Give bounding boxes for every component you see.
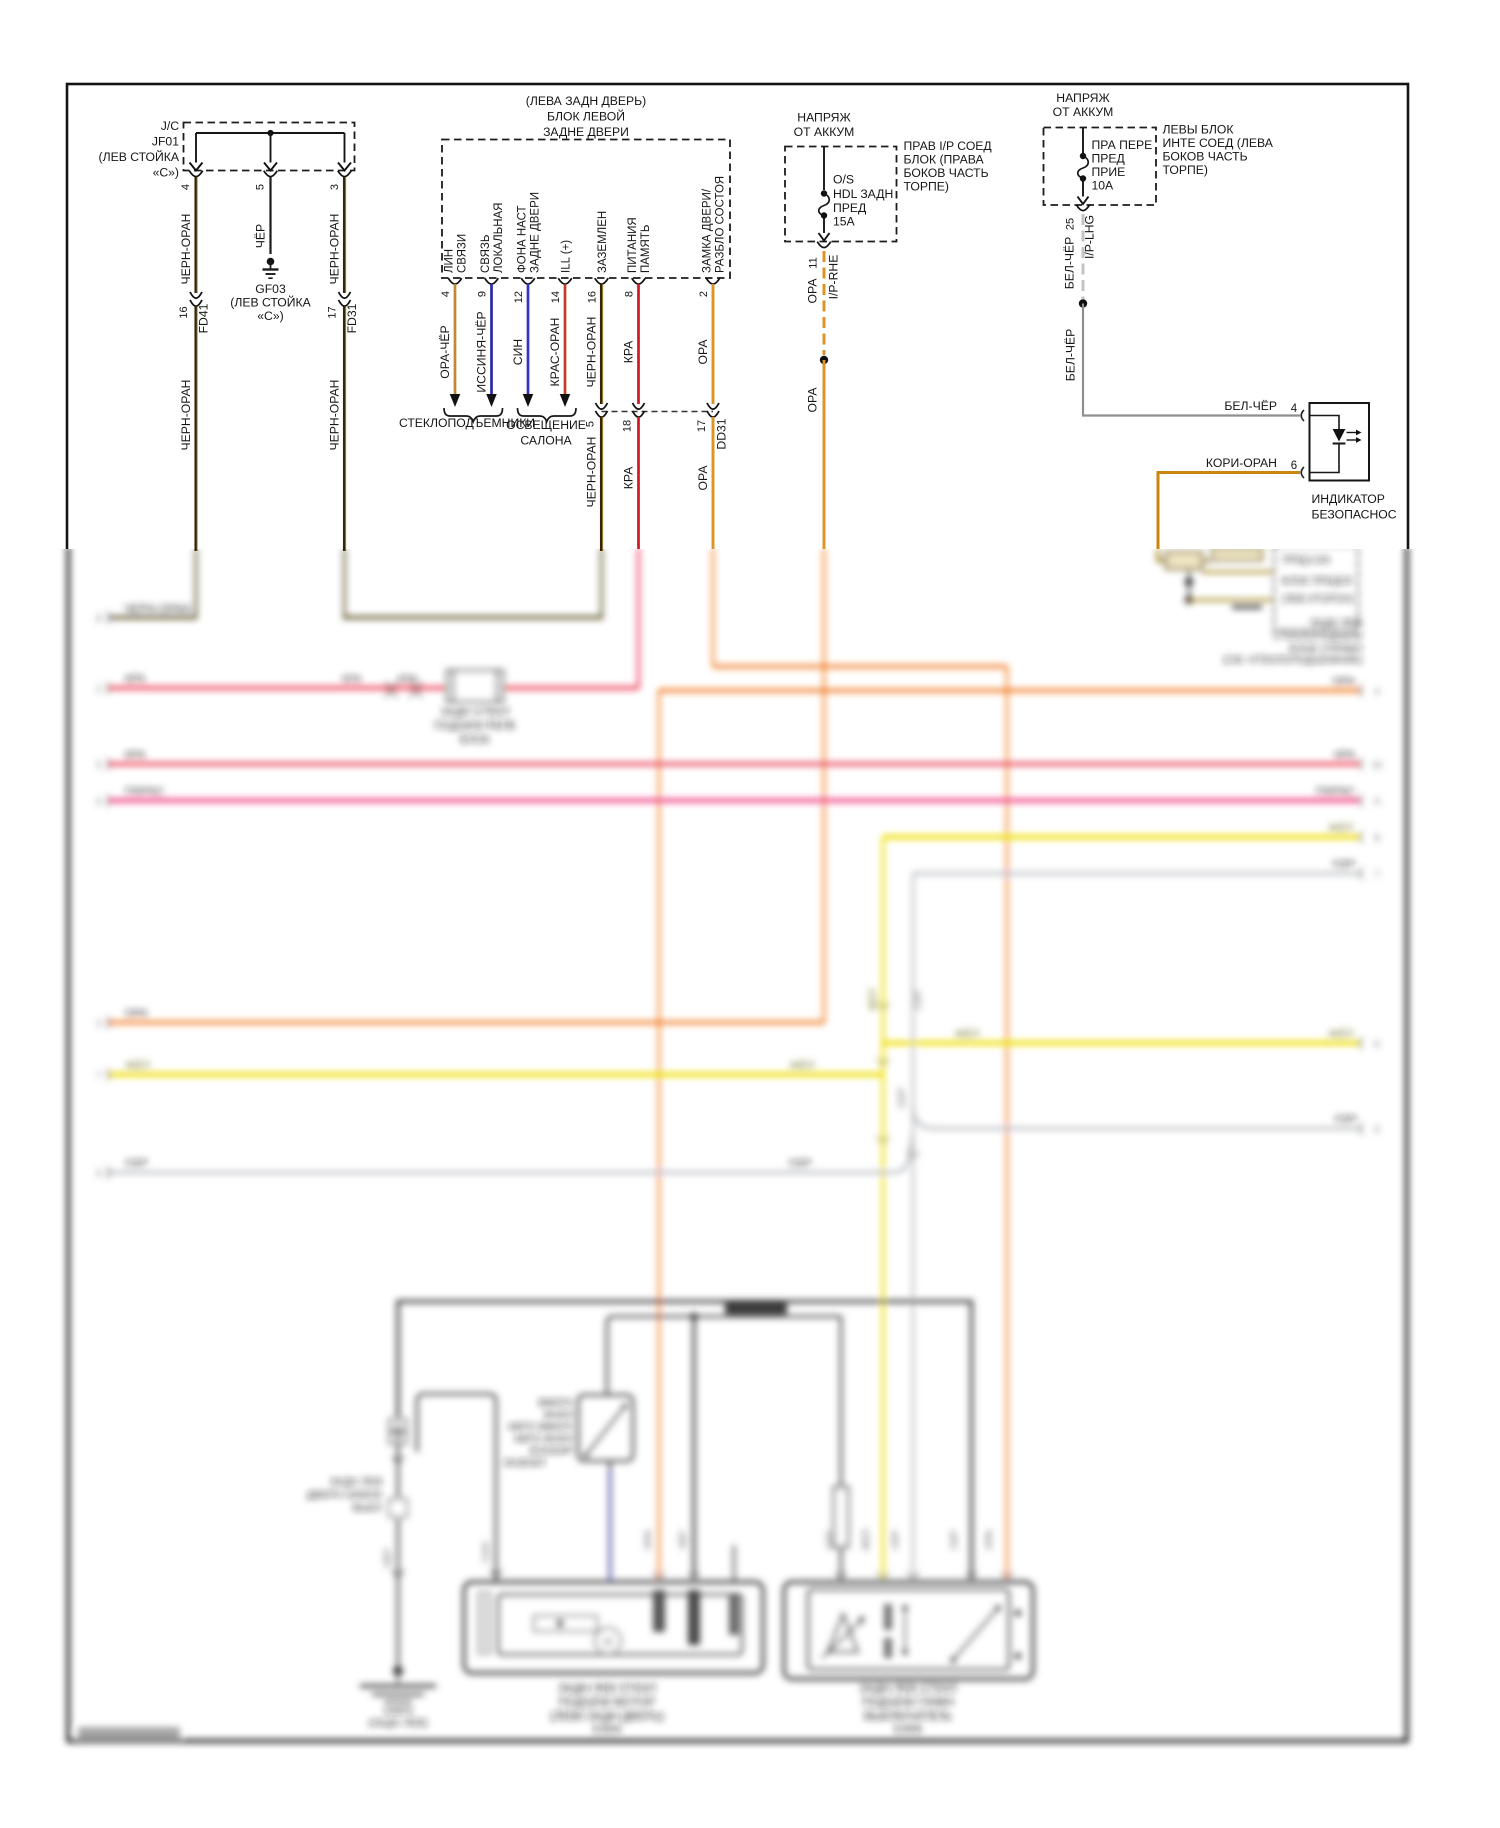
svg-text:ЖЁЛ: ЖЁЛ — [1328, 823, 1353, 835]
svg-text:(ЛЕВ СТОЙКА: (ЛЕВ СТОЙКА — [230, 295, 311, 310]
svg-text:4: 4 — [1374, 687, 1379, 698]
svg-text:НАПРЯЖ: НАПРЯЖ — [797, 111, 851, 125]
svg-text:КОРИ-ОРАН: КОРИ-ОРАН — [1206, 456, 1277, 470]
svg-text:10: 10 — [1372, 760, 1383, 771]
svg-text:БЛОКИР: БЛОКИР — [530, 1445, 573, 1457]
svg-text:ВНИЗ: ВНИЗ — [545, 1409, 573, 1421]
svg-text:14: 14 — [550, 291, 562, 303]
svg-text:12: 12 — [513, 291, 525, 303]
svg-text:I/P-RHE: I/P-RHE — [827, 255, 841, 300]
svg-text:ОТ АККУМ: ОТ АККУМ — [1053, 105, 1114, 119]
svg-text:САЛОНА: САЛОНА — [520, 434, 572, 448]
svg-text:ЧЕРН-ОРАН: ЧЕРН-ОРАН — [179, 380, 193, 451]
svg-text:СВЯЗЬ: СВЯЗЬ — [480, 235, 492, 273]
svg-text:FD41: FD41 — [197, 303, 211, 333]
svg-text:ЧЕРН-ОРАН: ЧЕРН-ОРАН — [124, 604, 191, 616]
svg-text:БОКОВ ЧАСТЬ: БОКОВ ЧАСТЬ — [1163, 150, 1248, 164]
svg-text:АВТО ВНИЗ: АВТО ВНИЗ — [514, 1433, 573, 1445]
svg-text:ЗАДН ЛЕВ СТЕКЛ: ЗАДН ЛЕВ СТЕКЛ — [859, 1683, 956, 1695]
svg-text:11: 11 — [808, 257, 820, 268]
svg-text:ОРА: ОРА — [696, 339, 710, 365]
svg-text:БЛОК (ПРАВА: БЛОК (ПРАВА — [904, 153, 985, 167]
svg-text:КРА: КРА — [622, 340, 636, 363]
svg-text:ЛИН: ЛИН — [444, 249, 456, 273]
svg-text:7: 7 — [1374, 870, 1379, 881]
svg-text:СЕР: СЕР — [897, 1087, 908, 1108]
svg-text:9: 9 — [477, 291, 489, 297]
svg-text:ПРЕД: ПРЕД — [833, 201, 867, 215]
svg-text:GM03: GM03 — [384, 1705, 413, 1717]
svg-text:ЖЁЛ: ЖЁЛ — [125, 1060, 150, 1072]
svg-text:БЛОК ЛЕВОЙ: БЛОК ЛЕВОЙ — [547, 109, 625, 124]
svg-text:ЛЕВЫ БЛОК: ЛЕВЫ БЛОК — [1163, 123, 1235, 137]
svg-text:ДВЕРН ЗАМОК: ДВЕРН ЗАМОК — [307, 1489, 383, 1501]
svg-text:(ЛЕВА ЗАДН ДВЕРЬ): (ЛЕВА ЗАДН ДВЕРЬ) — [526, 94, 646, 108]
svg-text:ЗАЗЕМЛЕН: ЗАЗЕМЛЕН — [597, 211, 609, 273]
svg-text:ЖЁЛ: ЖЁЛ — [867, 989, 879, 1011]
svg-text:ЗАДН СТЕКЛ: ЗАДН СТЕКЛ — [441, 706, 509, 718]
svg-text:СЕР: СЕР — [890, 1530, 901, 1550]
svg-text:СИН: СИН — [481, 1541, 492, 1563]
svg-text:9: 9 — [96, 1169, 101, 1180]
svg-text:9: 9 — [1374, 797, 1379, 808]
svg-text:16: 16 — [178, 306, 190, 318]
svg-text:(СМ. СТЕКЛОПОДЪЕМНИК): (СМ. СТЕКЛОПОДЪЕМНИК) — [1223, 654, 1362, 666]
svg-text:3: 3 — [96, 1019, 101, 1030]
svg-text:ЗАМКА ДВЕРИ/: ЗАМКА ДВЕРИ/ — [702, 188, 714, 273]
svg-text:M: M — [603, 1637, 613, 1649]
svg-text:(ЛЕВ СТОРОН): (ЛЕВ СТОРОН) — [1282, 594, 1353, 605]
svg-text:ОРА: ОРА — [806, 278, 820, 304]
svg-text:КРА: КРА — [622, 466, 636, 489]
svg-text:GF03: GF03 — [255, 282, 286, 296]
svg-text:ПРАВ I/P СОЕД: ПРАВ I/P СОЕД — [904, 139, 993, 153]
svg-text:(ЛЕВА ЗАДН ДВЕРЬ): (ЛЕВА ЗАДН ДВЕРЬ) — [550, 1711, 664, 1723]
svg-text:ОСВЕЩЕНИЕ: ОСВЕЩЕНИЕ — [506, 418, 586, 432]
svg-text:П/КРАС: П/КРАС — [125, 786, 164, 798]
svg-text:5: 5 — [1374, 1125, 1379, 1136]
svg-text:СЕР: СЕР — [1332, 859, 1355, 871]
svg-text:5: 5 — [255, 184, 267, 190]
svg-text:ПОДЪЕМ РЕЛЕ: ПОДЪЕМ РЕЛЕ — [434, 720, 515, 732]
svg-text:СЕР: СЕР — [825, 1530, 836, 1550]
svg-text:4: 4 — [440, 291, 452, 297]
svg-text:15A: 15A — [833, 215, 856, 229]
svg-text:ЧЕРН-ОРАН: ЧЕРН-ОРАН — [328, 214, 342, 285]
svg-text:16: 16 — [587, 291, 599, 303]
svg-text:ОРА: ОРА — [1333, 676, 1356, 688]
svg-text:ЗАДН ЛЕВ СТЕКЛ: ЗАДН ЛЕВ СТЕКЛ — [558, 1683, 655, 1695]
svg-text:ЧЕРН-ОРАН: ЧЕРН-ОРАН — [585, 317, 599, 388]
svg-text:ЗАДН ЛЕВ: ЗАДН ЛЕВ — [1310, 617, 1362, 629]
svg-text:6: 6 — [1374, 1039, 1379, 1050]
svg-text:ИНДИКАТОР: ИНДИКАТОР — [1312, 492, 1385, 506]
svg-text:ПРЕД 10А: ПРЕД 10А — [1282, 555, 1330, 566]
svg-text:ЗАДНЕ ДВЕРИ: ЗАДНЕ ДВЕРИ — [543, 125, 629, 139]
svg-text:П/КРАС: П/КРАС — [1316, 786, 1355, 798]
svg-text:25: 25 — [1065, 218, 1077, 230]
svg-text:БОКОВ ЧАСТЬ: БОКОВ ЧАСТЬ — [904, 166, 989, 180]
svg-text:СЕР: СЕР — [913, 989, 924, 1010]
svg-text:БЕЛ-ЧЁР: БЕЛ-ЧЁР — [1063, 237, 1077, 290]
svg-text:БЕЗОПАСНОС: БЕЗОПАСНОС — [1312, 508, 1397, 522]
svg-text:ОРА-ЧЁР: ОРА-ЧЁР — [438, 325, 452, 378]
svg-text:ЖЁЛ: ЖЁЛ — [790, 1060, 815, 1072]
svg-text:«С»): «С») — [257, 309, 283, 323]
svg-text:ILL (+): ILL (+) — [561, 240, 573, 273]
svg-text:СЕР: СЕР — [1334, 1114, 1357, 1126]
svg-text:ПАМЯТЬ: ПАМЯТЬ — [640, 225, 652, 273]
svg-text:КРА: КРА — [398, 674, 417, 686]
svg-text:ТОРПЕ): ТОРПЕ) — [904, 180, 949, 194]
svg-text:БЛОК: БЛОК — [460, 734, 490, 746]
svg-text:ФОНА НАСТ: ФОНА НАСТ — [517, 205, 529, 273]
svg-text:ИНТЕ СОЕД (ЛЕВА: ИНТЕ СОЕД (ЛЕВА — [1163, 136, 1274, 150]
svg-text:ОТ АККУМ: ОТ АККУМ — [794, 125, 855, 139]
svg-text:КРА: КРА — [125, 674, 146, 686]
svg-text:2: 2 — [698, 291, 710, 297]
svg-text:ЧЕРН-ОРАН: ЧЕРН-ОРАН — [179, 214, 193, 285]
svg-text:7: 7 — [96, 1071, 101, 1082]
svg-text:КРА: КРА — [342, 674, 361, 686]
svg-text:8: 8 — [96, 614, 101, 625]
svg-text:18: 18 — [622, 420, 634, 432]
svg-text:ВЫКЛ: ВЫКЛ — [353, 1502, 382, 1514]
svg-text:КРАС-ОРАН: КРАС-ОРАН — [548, 318, 562, 387]
svg-text:ЖЁЛ: ЖЁЛ — [861, 1529, 872, 1550]
svg-text:ЧЕРН-ОРАН: ЧЕРН-ОРАН — [585, 437, 599, 508]
svg-text:ОРА: ОРА — [696, 465, 710, 491]
svg-text:СВЯЗИ: СВЯЗИ — [457, 234, 469, 273]
svg-text:HDL ЗАДН: HDL ЗАДН — [833, 187, 893, 201]
svg-text:БЕЛ-ЧЁР: БЕЛ-ЧЁР — [1064, 329, 1078, 382]
svg-text:ПИТАНИЯ: ПИТАНИЯ — [627, 217, 639, 273]
svg-text:ПРЕД: ПРЕД — [1092, 152, 1126, 166]
svg-text:J/C: J/C — [161, 119, 179, 133]
svg-text:ЖЁЛ: ЖЁЛ — [955, 1029, 980, 1041]
svg-text:6: 6 — [1291, 460, 1297, 472]
svg-text:2: 2 — [96, 684, 101, 695]
svg-text:«С»): «С») — [153, 166, 179, 180]
svg-text:10A: 10A — [1092, 179, 1115, 193]
svg-text:17: 17 — [696, 420, 708, 432]
svg-text:(ЛЕВ СТОЙКА: (ЛЕВ СТОЙКА — [99, 149, 180, 164]
svg-text:ОРА: ОРА — [806, 387, 820, 413]
svg-text:ПОДЪЕМ ГЛАВН: ПОДЪЕМ ГЛАВН — [862, 1697, 953, 1709]
svg-text:4: 4 — [180, 184, 192, 190]
svg-text:ОРА: ОРА — [125, 1008, 148, 1020]
svg-text:ЗАДН ЛЕВ: ЗАДН ЛЕВ — [330, 1476, 382, 1488]
svg-text:FD31: FD31 — [345, 303, 359, 333]
svg-text:JF01: JF01 — [152, 135, 179, 149]
svg-text:5: 5 — [96, 760, 101, 771]
svg-text:O/S: O/S — [833, 173, 854, 187]
svg-text:D305: D305 — [894, 1724, 922, 1736]
svg-text:ЗАЗЕМЛ: ЗАЗЕМЛ — [503, 1457, 545, 1469]
svg-text:СЕР: СЕР — [949, 1530, 960, 1550]
svg-text:ЖЁЛ: ЖЁЛ — [1328, 1029, 1353, 1041]
svg-text:ПОДЪЕМ МОТОР: ПОДЪЕМ МОТОР — [559, 1697, 655, 1709]
svg-text:ЧЁР: ЧЁР — [382, 1548, 394, 1568]
svg-text:ЧЁР: ЧЁР — [254, 224, 268, 248]
svg-text:I/P-LHG: I/P-LHG — [1083, 215, 1097, 259]
svg-text:БЕЛ-ЧЁР: БЕЛ-ЧЁР — [1224, 399, 1277, 413]
svg-text:5: 5 — [585, 421, 597, 427]
svg-text:8: 8 — [624, 291, 636, 297]
svg-text:ПРИЕ: ПРИЕ — [1092, 165, 1126, 179]
svg-text:ЗАДНЕ ДВЕРИ: ЗАДНЕ ДВЕРИ — [530, 192, 542, 273]
svg-text:(ЗАДН ЛЕВ): (ЗАДН ЛЕВ) — [368, 1717, 427, 1729]
svg-text:17: 17 — [327, 306, 339, 318]
svg-text:ЛОКАЛЬНАЯ: ЛОКАЛЬНАЯ — [493, 203, 505, 274]
svg-text:8: 8 — [1374, 833, 1379, 844]
svg-text:ВЫКЛЮЧАТЕЛЬ: ВЫКЛЮЧАТЕЛЬ — [864, 1711, 952, 1723]
svg-text:НАПРЯЖ: НАПРЯЖ — [1056, 91, 1110, 105]
svg-text:3: 3 — [329, 184, 341, 190]
svg-text:СЕР: СЕР — [789, 1158, 812, 1170]
svg-text:КРА: КРА — [125, 750, 146, 762]
svg-text:КРА: КРА — [1335, 750, 1356, 762]
svg-text:РАЗБЛО СОСТОЯ: РАЗБЛО СОСТОЯ — [715, 176, 727, 273]
svg-text:4: 4 — [1291, 403, 1298, 415]
svg-text:АВТО ВВЕРХ: АВТО ВВЕРХ — [508, 1421, 573, 1433]
svg-text:ВВЕРХ: ВВЕРХ — [538, 1397, 573, 1409]
svg-text:СИН: СИН — [511, 339, 525, 365]
svg-text:СТЕКЛОПОДЪЕМ: СТЕКЛОПОДЪЕМ — [1274, 630, 1362, 642]
svg-text:БЛОК ПРЕДОХ: БЛОК ПРЕДОХ — [1282, 576, 1353, 587]
svg-text:ПРА ПЕРЕ: ПРА ПЕРЕ — [1092, 138, 1153, 152]
svg-text:ОРА: ОРА — [643, 1530, 654, 1550]
svg-text:ИССИНЯ-ЧЁР: ИССИНЯ-ЧЁР — [475, 311, 489, 392]
svg-text:ОРА: ОРА — [984, 1530, 995, 1550]
svg-text:6: 6 — [96, 797, 101, 808]
svg-text:DD31: DD31 — [715, 418, 729, 449]
svg-text:ЧЁР: ЧЁР — [678, 1530, 689, 1549]
svg-text:СЕР: СЕР — [125, 1158, 148, 1170]
svg-text:ТОРПЕ): ТОРПЕ) — [1163, 163, 1208, 177]
svg-text:ЧЕРН-ОРАН: ЧЕРН-ОРАН — [328, 380, 342, 451]
svg-text:D304: D304 — [593, 1724, 621, 1736]
